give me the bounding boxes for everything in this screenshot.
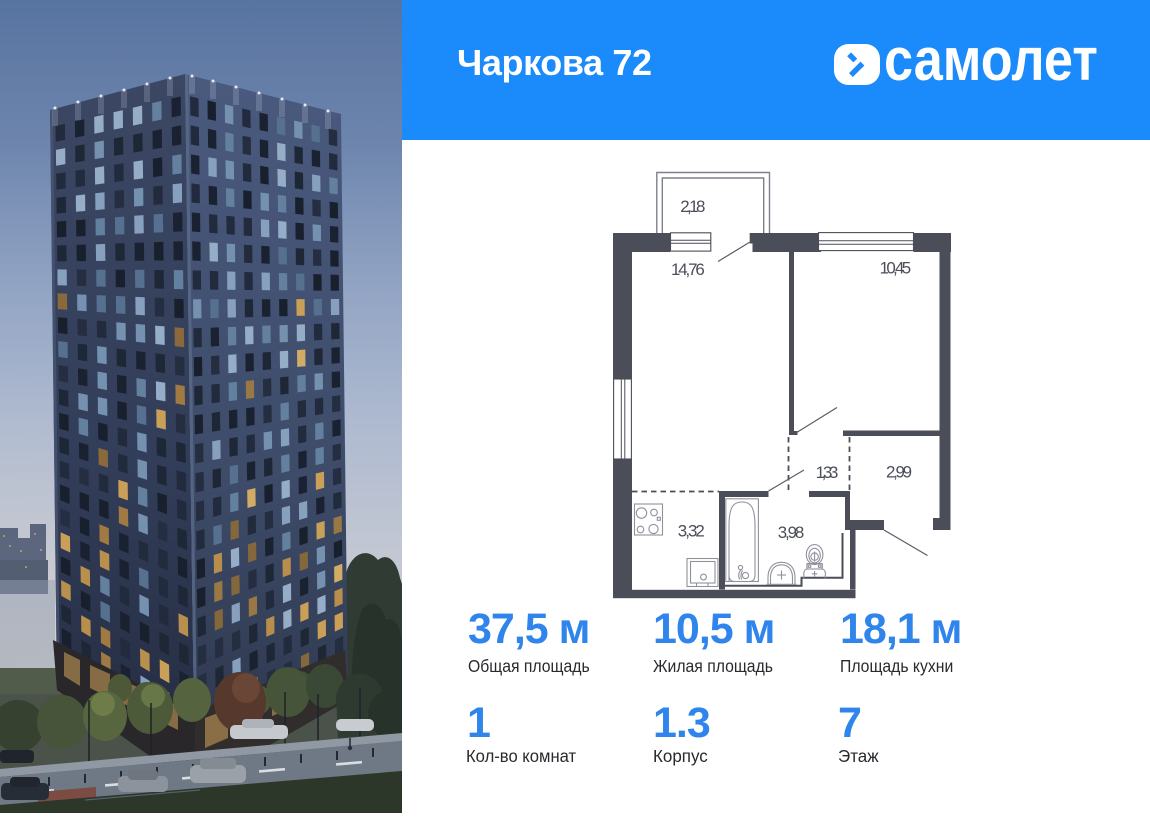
svg-text:3,98: 3,98 — [778, 523, 805, 542]
svg-text:2,18: 2,18 — [680, 197, 705, 216]
svg-text:3,32: 3,32 — [678, 522, 705, 541]
svg-text:1,33: 1,33 — [816, 463, 839, 482]
svg-text:10,45: 10,45 — [880, 259, 912, 278]
svg-text:2,99: 2,99 — [886, 462, 912, 481]
svg-text:14,76: 14,76 — [671, 260, 705, 279]
